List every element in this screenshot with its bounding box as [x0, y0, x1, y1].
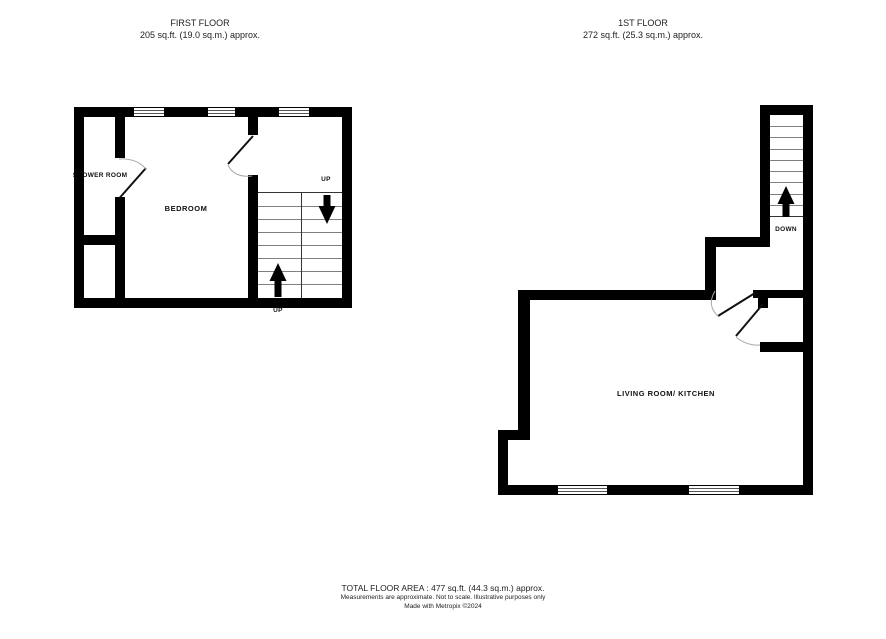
wall	[248, 117, 258, 135]
stair-tread	[302, 284, 342, 285]
window-symbol	[557, 485, 608, 495]
room-label-bedroom: BEDROOM	[136, 204, 236, 213]
1st-floor-title: 1ST FLOOR	[543, 18, 743, 30]
window-symbol	[278, 107, 310, 117]
door-swing-arc	[736, 337, 760, 345]
room-label-shower-room: SHOWER ROOM	[52, 172, 148, 179]
door-leaf	[718, 293, 755, 316]
stair-tread	[258, 245, 301, 246]
wall	[498, 485, 813, 495]
wall	[84, 235, 115, 245]
stair-label-up-bottom: UP	[258, 307, 298, 314]
wall	[74, 298, 352, 308]
stair-label-down: DOWN	[766, 226, 806, 233]
window-symbol	[688, 485, 740, 495]
window-symbol	[207, 107, 236, 117]
stair-tread	[258, 284, 301, 285]
stair-tread	[302, 258, 342, 259]
stair-tread	[258, 258, 301, 259]
door-leaf	[736, 304, 763, 336]
stair-tread	[302, 206, 342, 207]
plan-graphics-overlay	[0, 0, 886, 639]
wall	[518, 290, 530, 440]
staircase-flight-right	[302, 193, 342, 297]
stair-edge	[770, 216, 803, 217]
wall	[753, 290, 813, 298]
floorplan-canvas: FIRST FLOOR 205 sq.ft. (19.0 sq.m.) appr…	[0, 0, 886, 639]
stair-label-up-top: UP	[306, 176, 346, 183]
wall	[74, 107, 84, 308]
door-leaf	[228, 136, 253, 164]
stair-tread	[302, 219, 342, 220]
disclaimer: Measurements are approximate. Not to sca…	[243, 594, 643, 603]
wall	[115, 197, 125, 298]
stair-tread	[258, 271, 301, 272]
staircase-down	[770, 115, 803, 216]
stair-tread	[258, 206, 301, 207]
wall	[342, 107, 352, 308]
wall	[803, 105, 813, 495]
wall	[115, 117, 125, 158]
stair-tread	[770, 171, 803, 172]
1st-floor-title-block: 1ST FLOOR 272 sq.ft. (25.3 sq.m.) approx…	[543, 18, 743, 41]
stair-tread	[770, 149, 803, 150]
room-label-living-room-kitchen: LIVING ROOM/ KITCHEN	[566, 389, 766, 398]
stair-tread	[770, 137, 803, 138]
wall	[760, 342, 813, 352]
footer: TOTAL FLOOR AREA : 477 sq.ft. (44.3 sq.m…	[243, 583, 643, 611]
stair-tread	[770, 194, 803, 195]
credit: Made with Metropix ©2024	[243, 603, 643, 612]
stair-tread	[770, 205, 803, 206]
stair-tread	[302, 271, 342, 272]
window-symbol	[133, 107, 165, 117]
door-swing-arc	[119, 159, 146, 169]
1st-floor-area: 272 sq.ft. (25.3 sq.m.) approx.	[543, 30, 743, 42]
wall	[248, 175, 258, 298]
stair-tread	[302, 232, 342, 233]
total-floor-area: TOTAL FLOOR AREA : 477 sq.ft. (44.3 sq.m…	[243, 583, 643, 594]
first-floor-title: FIRST FLOOR	[100, 18, 300, 30]
first-floor-title-block: FIRST FLOOR 205 sq.ft. (19.0 sq.m.) appr…	[100, 18, 300, 41]
first-floor-area: 205 sq.ft. (19.0 sq.m.) approx.	[100, 30, 300, 42]
wall	[518, 290, 716, 300]
stair-tread	[258, 232, 301, 233]
stair-tread	[770, 182, 803, 183]
stair-tread	[302, 245, 342, 246]
staircase-flight-left	[258, 193, 301, 297]
stair-tread	[258, 219, 301, 220]
stair-tread	[770, 126, 803, 127]
door-jamb	[758, 298, 768, 308]
stair-tread	[770, 160, 803, 161]
